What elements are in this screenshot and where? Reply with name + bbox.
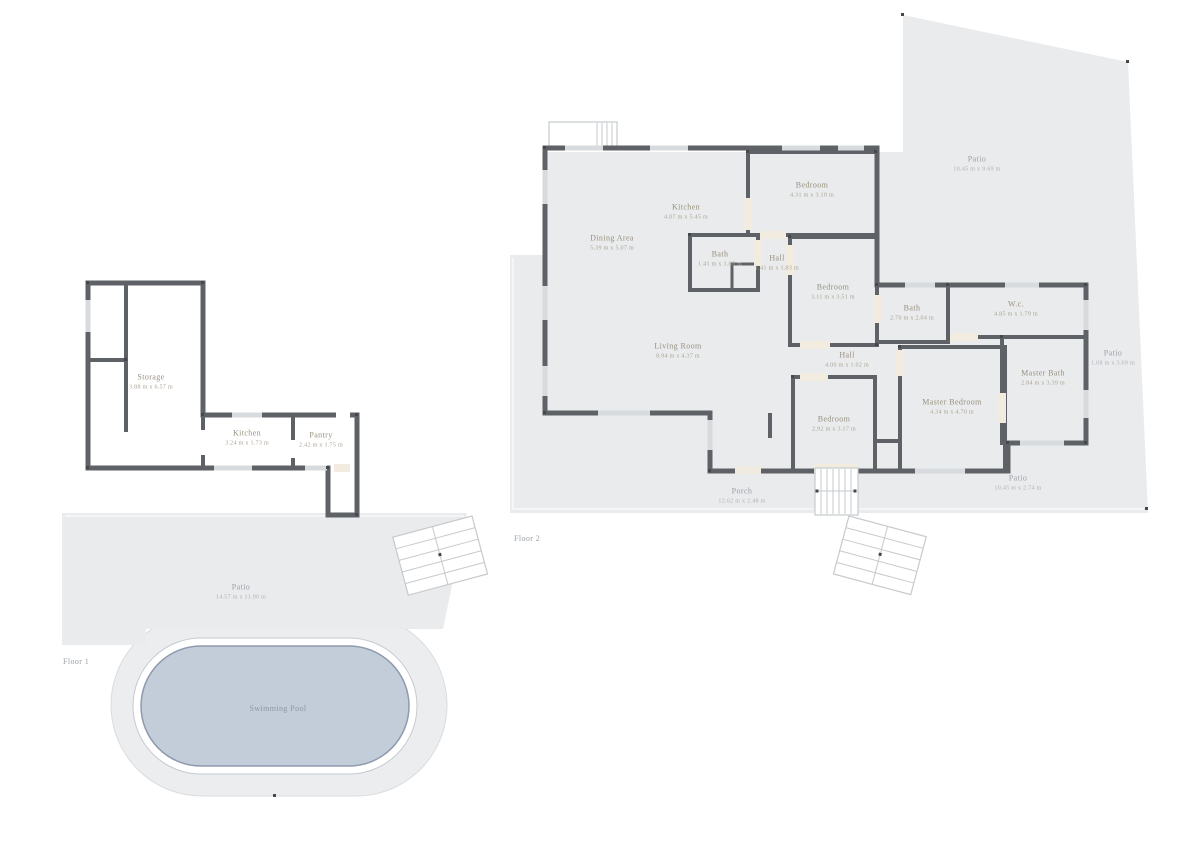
- floor2-plan: [510, 13, 1148, 595]
- floor2-patio-deck: [510, 15, 1148, 513]
- floor-plan-canvas: Dining Area 5.39 m x 5.07 m Kitchen 4.07…: [0, 0, 1200, 866]
- floor2-garden-stairs: [833, 516, 926, 595]
- floor1-interior-walls: [88, 283, 293, 468]
- floor2-balcony: [549, 122, 617, 149]
- floor1-door-openings: [334, 411, 350, 472]
- floor-plan-drawing: [0, 0, 1200, 866]
- floor1-windows: [86, 300, 328, 471]
- floor1-plan: [62, 281, 488, 797]
- swimming-pool: [141, 646, 409, 766]
- floor1-patio-strip: [62, 513, 146, 645]
- floor2-porch-stairs: [815, 468, 858, 515]
- floor1-house-footprint: [88, 283, 357, 515]
